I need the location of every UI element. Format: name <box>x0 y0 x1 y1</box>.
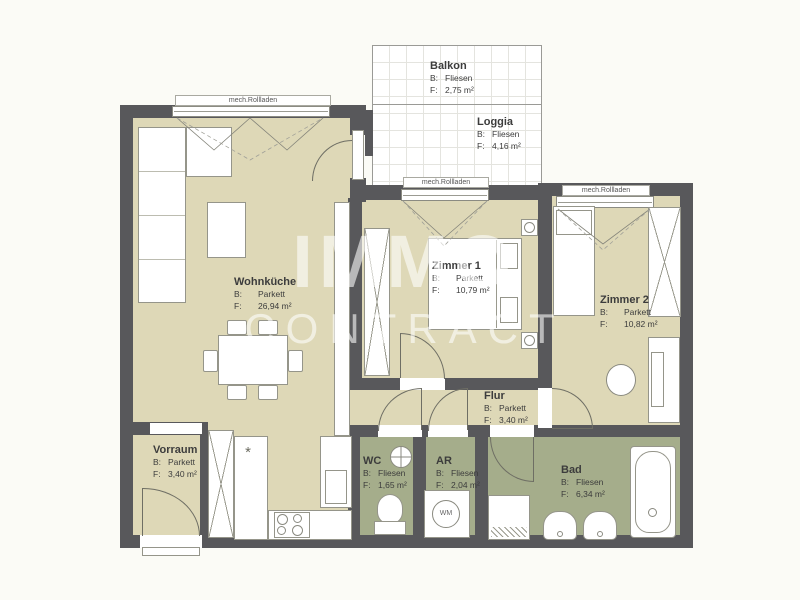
room-label-zimmer2: Zimmer 2 B:Parkett F:10,82 m² <box>600 294 658 330</box>
room-name: WC <box>363 455 407 468</box>
area-value: 10,82 m² <box>624 319 658 329</box>
room-area: F:4,16 m² <box>477 141 521 153</box>
surface-key: B: <box>234 289 258 301</box>
area-key: F: <box>477 141 492 153</box>
surface-value: Parkett <box>168 457 195 467</box>
surface-value: Fliesen <box>378 468 405 478</box>
room-name: Vorraum <box>153 444 197 457</box>
area-key: F: <box>561 489 576 501</box>
room-surface: B:Fliesen <box>430 73 474 85</box>
area-value: 1,65 m² <box>378 480 407 490</box>
surface-value: Parkett <box>258 289 285 299</box>
area-key: F: <box>432 285 456 297</box>
room-area: F:1,65 m² <box>363 480 407 492</box>
area-key: F: <box>234 301 258 313</box>
area-value: 2,75 m² <box>445 85 474 95</box>
room-surface: B:Fliesen <box>477 129 521 141</box>
surface-value: Fliesen <box>576 477 603 487</box>
room-label-ar: AR B:Fliesen F:2,04 m² <box>436 455 480 491</box>
room-name: Zimmer 2 <box>600 294 658 307</box>
room-area: F:6,34 m² <box>561 489 605 501</box>
room-label-wc: WC B:Fliesen F:1,65 m² <box>363 455 407 491</box>
room-surface: B:Parkett <box>600 307 658 319</box>
area-value: 6,34 m² <box>576 489 605 499</box>
surface-key: B: <box>153 457 168 469</box>
room-label-zimmer1: Zimmer 1 B:Parkett F:10,79 m² <box>432 260 490 296</box>
room-label-bad: Bad B:Fliesen F:6,34 m² <box>561 464 605 500</box>
room-surface: B:Parkett <box>432 273 490 285</box>
area-key: F: <box>363 480 378 492</box>
room-area: F:10,82 m² <box>600 319 658 331</box>
room-name: Wohnküche <box>234 276 296 289</box>
floor-plan: mech.Rollladen mech.Rollladen mech.Rolll… <box>0 0 800 600</box>
area-value: 3,40 m² <box>499 415 528 425</box>
surface-value: Fliesen <box>445 73 472 83</box>
surface-key: B: <box>484 403 499 415</box>
surface-key: B: <box>363 468 378 480</box>
room-label-vorraum: Vorraum B:Parkett F:3,40 m² <box>153 444 197 480</box>
room-area: F:2,04 m² <box>436 480 480 492</box>
surface-key: B: <box>436 468 451 480</box>
room-surface: B:Parkett <box>234 289 296 301</box>
area-key: F: <box>600 319 624 331</box>
room-surface: B:Fliesen <box>436 468 480 480</box>
room-surface: B:Fliesen <box>363 468 407 480</box>
room-area: F:3,40 m² <box>484 415 528 427</box>
room-name: Zimmer 1 <box>432 260 490 273</box>
area-key: F: <box>436 480 451 492</box>
area-value: 3,40 m² <box>168 469 197 479</box>
surface-value: Fliesen <box>492 129 519 139</box>
room-name: AR <box>436 455 480 468</box>
window-swing-lines <box>0 0 800 600</box>
room-name: Balkon <box>430 60 474 73</box>
room-name: Bad <box>561 464 605 477</box>
surface-value: Parkett <box>624 307 651 317</box>
surface-key: B: <box>477 129 492 141</box>
room-area: F:10,79 m² <box>432 285 490 297</box>
room-label-loggia: Loggia B:Fliesen F:4,16 m² <box>477 116 521 152</box>
surface-key: B: <box>600 307 624 319</box>
room-surface: B:Parkett <box>153 457 197 469</box>
room-surface: B:Parkett <box>484 403 528 415</box>
room-label-wohnkueche: Wohnküche B:Parkett F:26,94 m² <box>234 276 296 312</box>
room-area: F:26,94 m² <box>234 301 296 313</box>
surface-key: B: <box>561 477 576 489</box>
area-key: F: <box>430 85 445 97</box>
area-value: 10,79 m² <box>456 285 490 295</box>
surface-value: Parkett <box>456 273 483 283</box>
surface-key: B: <box>432 273 456 285</box>
room-name: Flur <box>484 390 528 403</box>
room-label-balkon: Balkon B:Fliesen F:2,75 m² <box>430 60 474 96</box>
surface-key: B: <box>430 73 445 85</box>
area-value: 2,04 m² <box>451 480 480 490</box>
room-name: Loggia <box>477 116 521 129</box>
room-label-flur: Flur B:Parkett F:3,40 m² <box>484 390 528 426</box>
area-key: F: <box>484 415 499 427</box>
room-area: F:3,40 m² <box>153 469 197 481</box>
area-key: F: <box>153 469 168 481</box>
surface-value: Parkett <box>499 403 526 413</box>
room-surface: B:Fliesen <box>561 477 605 489</box>
room-area: F:2,75 m² <box>430 85 474 97</box>
surface-value: Fliesen <box>451 468 478 478</box>
area-value: 26,94 m² <box>258 301 292 311</box>
area-value: 4,16 m² <box>492 141 521 151</box>
